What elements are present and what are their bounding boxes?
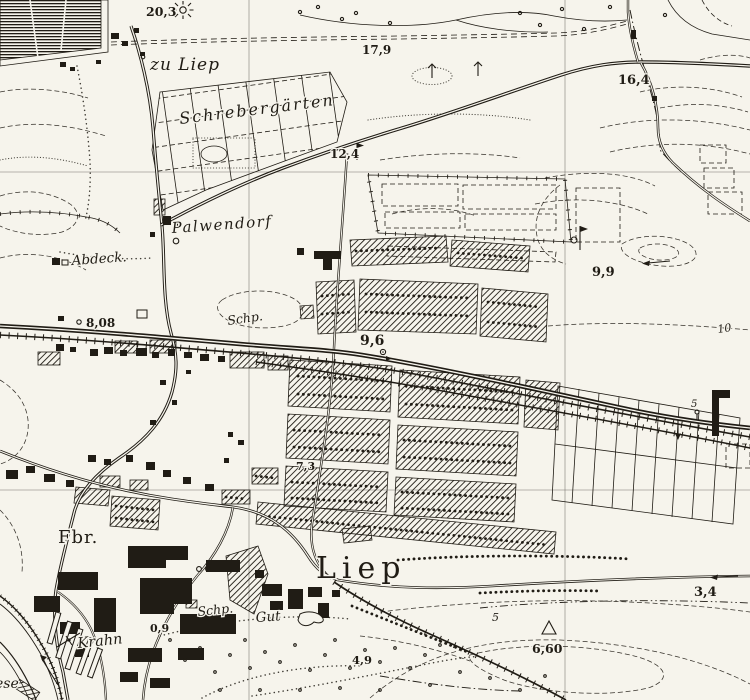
contour-label-5-small: 5 <box>691 399 697 410</box>
label-krahn: Krahn <box>76 631 124 652</box>
elevation-0-9: 0,9 <box>150 622 169 635</box>
elevation-9-9: 9,9 <box>592 265 615 280</box>
label-liep: Liep <box>316 551 406 586</box>
elevation-3-4: 3,4 <box>694 585 717 600</box>
elevation-9-6: 9,6 <box>360 333 384 349</box>
elevation-7-3: 7,3 <box>296 460 315 473</box>
label-meadow-partial: ese <box>0 676 19 692</box>
map-page: zu Liep Schrebergärten Palwendorf Abdeck… <box>0 0 750 700</box>
contour-label-10: 10 <box>717 321 733 336</box>
plantation-block <box>0 0 108 66</box>
elevation-4-9: 4,9 <box>352 653 372 667</box>
elevation-8-08: 8,08 <box>86 316 115 330</box>
elevation-20-3: 20,3 <box>146 4 176 19</box>
elevation-16-4: 16,4 <box>618 73 650 88</box>
label-gut: Gut <box>255 608 282 626</box>
trig-point-icon <box>542 621 556 634</box>
label-palwendorf: Palwendorf <box>170 212 274 237</box>
contour-label-5: 5 <box>492 611 499 624</box>
pump-flag-icon <box>571 226 588 250</box>
label-fbr: Fbr. <box>58 527 98 548</box>
elevation-6-60: 6,60 <box>532 641 563 656</box>
map-canvas: zu Liep Schrebergärten Palwendorf Abdeck… <box>0 0 750 700</box>
label-abdeck: Abdeck. <box>69 249 127 269</box>
mound-icon <box>412 62 482 85</box>
elevation-12-4: 12,4 <box>330 147 359 161</box>
label-schp-upper: Schp. <box>226 308 263 328</box>
label-schrebergaerten: Schrebergärten <box>178 90 335 128</box>
elevation-17-9: 17,9 <box>362 43 391 57</box>
label-zu-liep: zu Liep <box>149 55 220 75</box>
